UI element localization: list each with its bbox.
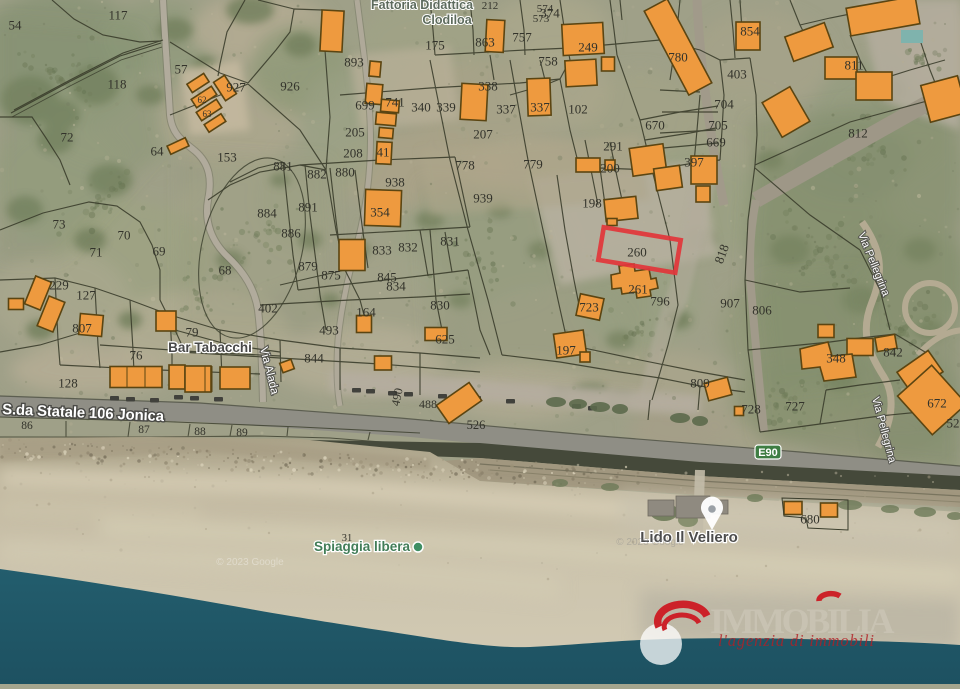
svg-text:68: 68 <box>219 263 232 278</box>
svg-text:l'agenzia di immobili: l'agenzia di immobili <box>718 631 874 650</box>
svg-text:779: 779 <box>523 157 543 172</box>
svg-text:348: 348 <box>826 351 846 366</box>
svg-text:208: 208 <box>343 146 363 161</box>
svg-text:354: 354 <box>370 205 390 220</box>
svg-text:926: 926 <box>280 79 300 94</box>
svg-text:Spiaggia libera: Spiaggia libera <box>314 539 411 554</box>
svg-text:488: 488 <box>419 397 437 411</box>
svg-text:526: 526 <box>467 418 486 432</box>
svg-text:844: 844 <box>304 351 324 366</box>
svg-text:881: 881 <box>273 159 293 174</box>
svg-text:758: 758 <box>538 54 558 69</box>
svg-text:927: 927 <box>226 80 246 95</box>
svg-text:Clodiloa: Clodiloa <box>422 13 472 27</box>
svg-text:854: 854 <box>740 24 760 39</box>
svg-text:625: 625 <box>435 332 455 347</box>
svg-text:757: 757 <box>512 30 532 45</box>
svg-text:397: 397 <box>684 155 704 170</box>
svg-text:723: 723 <box>579 300 599 315</box>
svg-text:175: 175 <box>425 38 445 53</box>
svg-text:54: 54 <box>9 18 23 33</box>
svg-text:833: 833 <box>372 243 392 258</box>
svg-text:705: 705 <box>708 118 728 133</box>
svg-text:780: 780 <box>668 50 688 65</box>
svg-text:260: 260 <box>627 245 647 260</box>
svg-text:939: 939 <box>473 191 493 206</box>
svg-text:102: 102 <box>568 102 588 117</box>
svg-text:882: 882 <box>307 167 327 182</box>
svg-text:153: 153 <box>217 150 237 165</box>
svg-text:863: 863 <box>475 35 495 50</box>
svg-text:79: 79 <box>186 325 199 340</box>
svg-text:811: 811 <box>844 58 863 73</box>
svg-text:842: 842 <box>883 345 903 360</box>
svg-text:291: 291 <box>603 139 623 154</box>
svg-text:89: 89 <box>236 427 248 439</box>
svg-text:197: 197 <box>556 343 576 358</box>
svg-text:807: 807 <box>72 321 92 336</box>
svg-text:831: 831 <box>440 234 460 249</box>
svg-text:86: 86 <box>21 420 33 432</box>
svg-text:Bar Tabacchi: Bar Tabacchi <box>168 340 252 355</box>
svg-text:670: 670 <box>645 118 665 133</box>
svg-text:812: 812 <box>848 126 868 141</box>
svg-text:41: 41 <box>377 145 390 160</box>
svg-text:76: 76 <box>130 348 144 363</box>
svg-text:806: 806 <box>752 303 772 318</box>
svg-text:809: 809 <box>690 376 710 391</box>
svg-text:832: 832 <box>398 240 418 255</box>
svg-text:127: 127 <box>76 288 96 303</box>
svg-text:493: 493 <box>319 323 339 338</box>
svg-text:338: 338 <box>478 79 498 94</box>
svg-text:834: 834 <box>386 279 406 294</box>
svg-text:728: 728 <box>741 402 761 417</box>
svg-text:57: 57 <box>175 62 189 77</box>
svg-text:69: 69 <box>153 244 166 259</box>
svg-text:117: 117 <box>108 8 128 23</box>
svg-text:879: 879 <box>298 259 318 274</box>
svg-text:938: 938 <box>385 175 405 190</box>
svg-text:E90: E90 <box>758 447 778 459</box>
svg-text:337: 337 <box>530 100 550 115</box>
svg-text:907: 907 <box>720 296 740 311</box>
svg-text:© 2023 Google: © 2023 Google <box>616 537 684 548</box>
svg-text:340: 340 <box>411 100 431 115</box>
svg-text:229: 229 <box>49 278 69 293</box>
svg-text:62: 62 <box>198 95 207 105</box>
svg-text:893: 893 <box>344 55 364 70</box>
svg-text:778: 778 <box>455 158 475 173</box>
svg-text:884: 884 <box>257 206 277 221</box>
svg-text:164: 164 <box>356 305 376 320</box>
svg-text:249: 249 <box>578 40 598 55</box>
svg-text:118: 118 <box>107 77 126 92</box>
svg-text:Fattoria Didattica: Fattoria Didattica <box>371 0 474 12</box>
svg-text:337: 337 <box>496 102 516 117</box>
svg-text:886: 886 <box>281 226 301 241</box>
svg-text:880: 880 <box>335 165 355 180</box>
svg-text:339: 339 <box>436 100 456 115</box>
svg-text:71: 71 <box>90 245 103 260</box>
svg-text:128: 128 <box>58 376 78 391</box>
svg-text:88: 88 <box>194 426 206 438</box>
svg-text:© 2023 Google: © 2023 Google <box>216 557 284 568</box>
svg-text:72: 72 <box>61 130 74 145</box>
svg-text:891: 891 <box>298 200 318 215</box>
svg-text:212: 212 <box>482 0 499 12</box>
svg-text:704: 704 <box>714 97 734 112</box>
svg-text:73: 73 <box>53 217 66 232</box>
svg-text:87: 87 <box>138 424 150 436</box>
svg-text:669: 669 <box>706 135 726 150</box>
svg-text:64: 64 <box>151 144 165 159</box>
svg-text:741: 741 <box>385 95 405 110</box>
svg-text:796: 796 <box>650 294 670 309</box>
svg-text:198: 198 <box>582 196 602 211</box>
svg-text:402: 402 <box>258 301 278 316</box>
svg-text:672: 672 <box>927 396 947 411</box>
svg-text:727: 727 <box>785 399 805 414</box>
svg-text:70: 70 <box>118 228 131 243</box>
svg-text:205: 205 <box>345 125 365 140</box>
svg-text:261: 261 <box>628 282 648 297</box>
svg-text:830: 830 <box>430 298 450 313</box>
svg-text:52: 52 <box>947 416 960 431</box>
svg-text:875: 875 <box>321 268 341 283</box>
svg-text:207: 207 <box>473 127 493 142</box>
svg-text:200: 200 <box>600 161 620 176</box>
svg-text:63: 63 <box>203 109 213 119</box>
svg-text:699: 699 <box>355 98 375 113</box>
svg-text:403: 403 <box>727 67 747 82</box>
svg-text:573: 573 <box>533 13 550 25</box>
svg-text:680: 680 <box>800 512 820 527</box>
